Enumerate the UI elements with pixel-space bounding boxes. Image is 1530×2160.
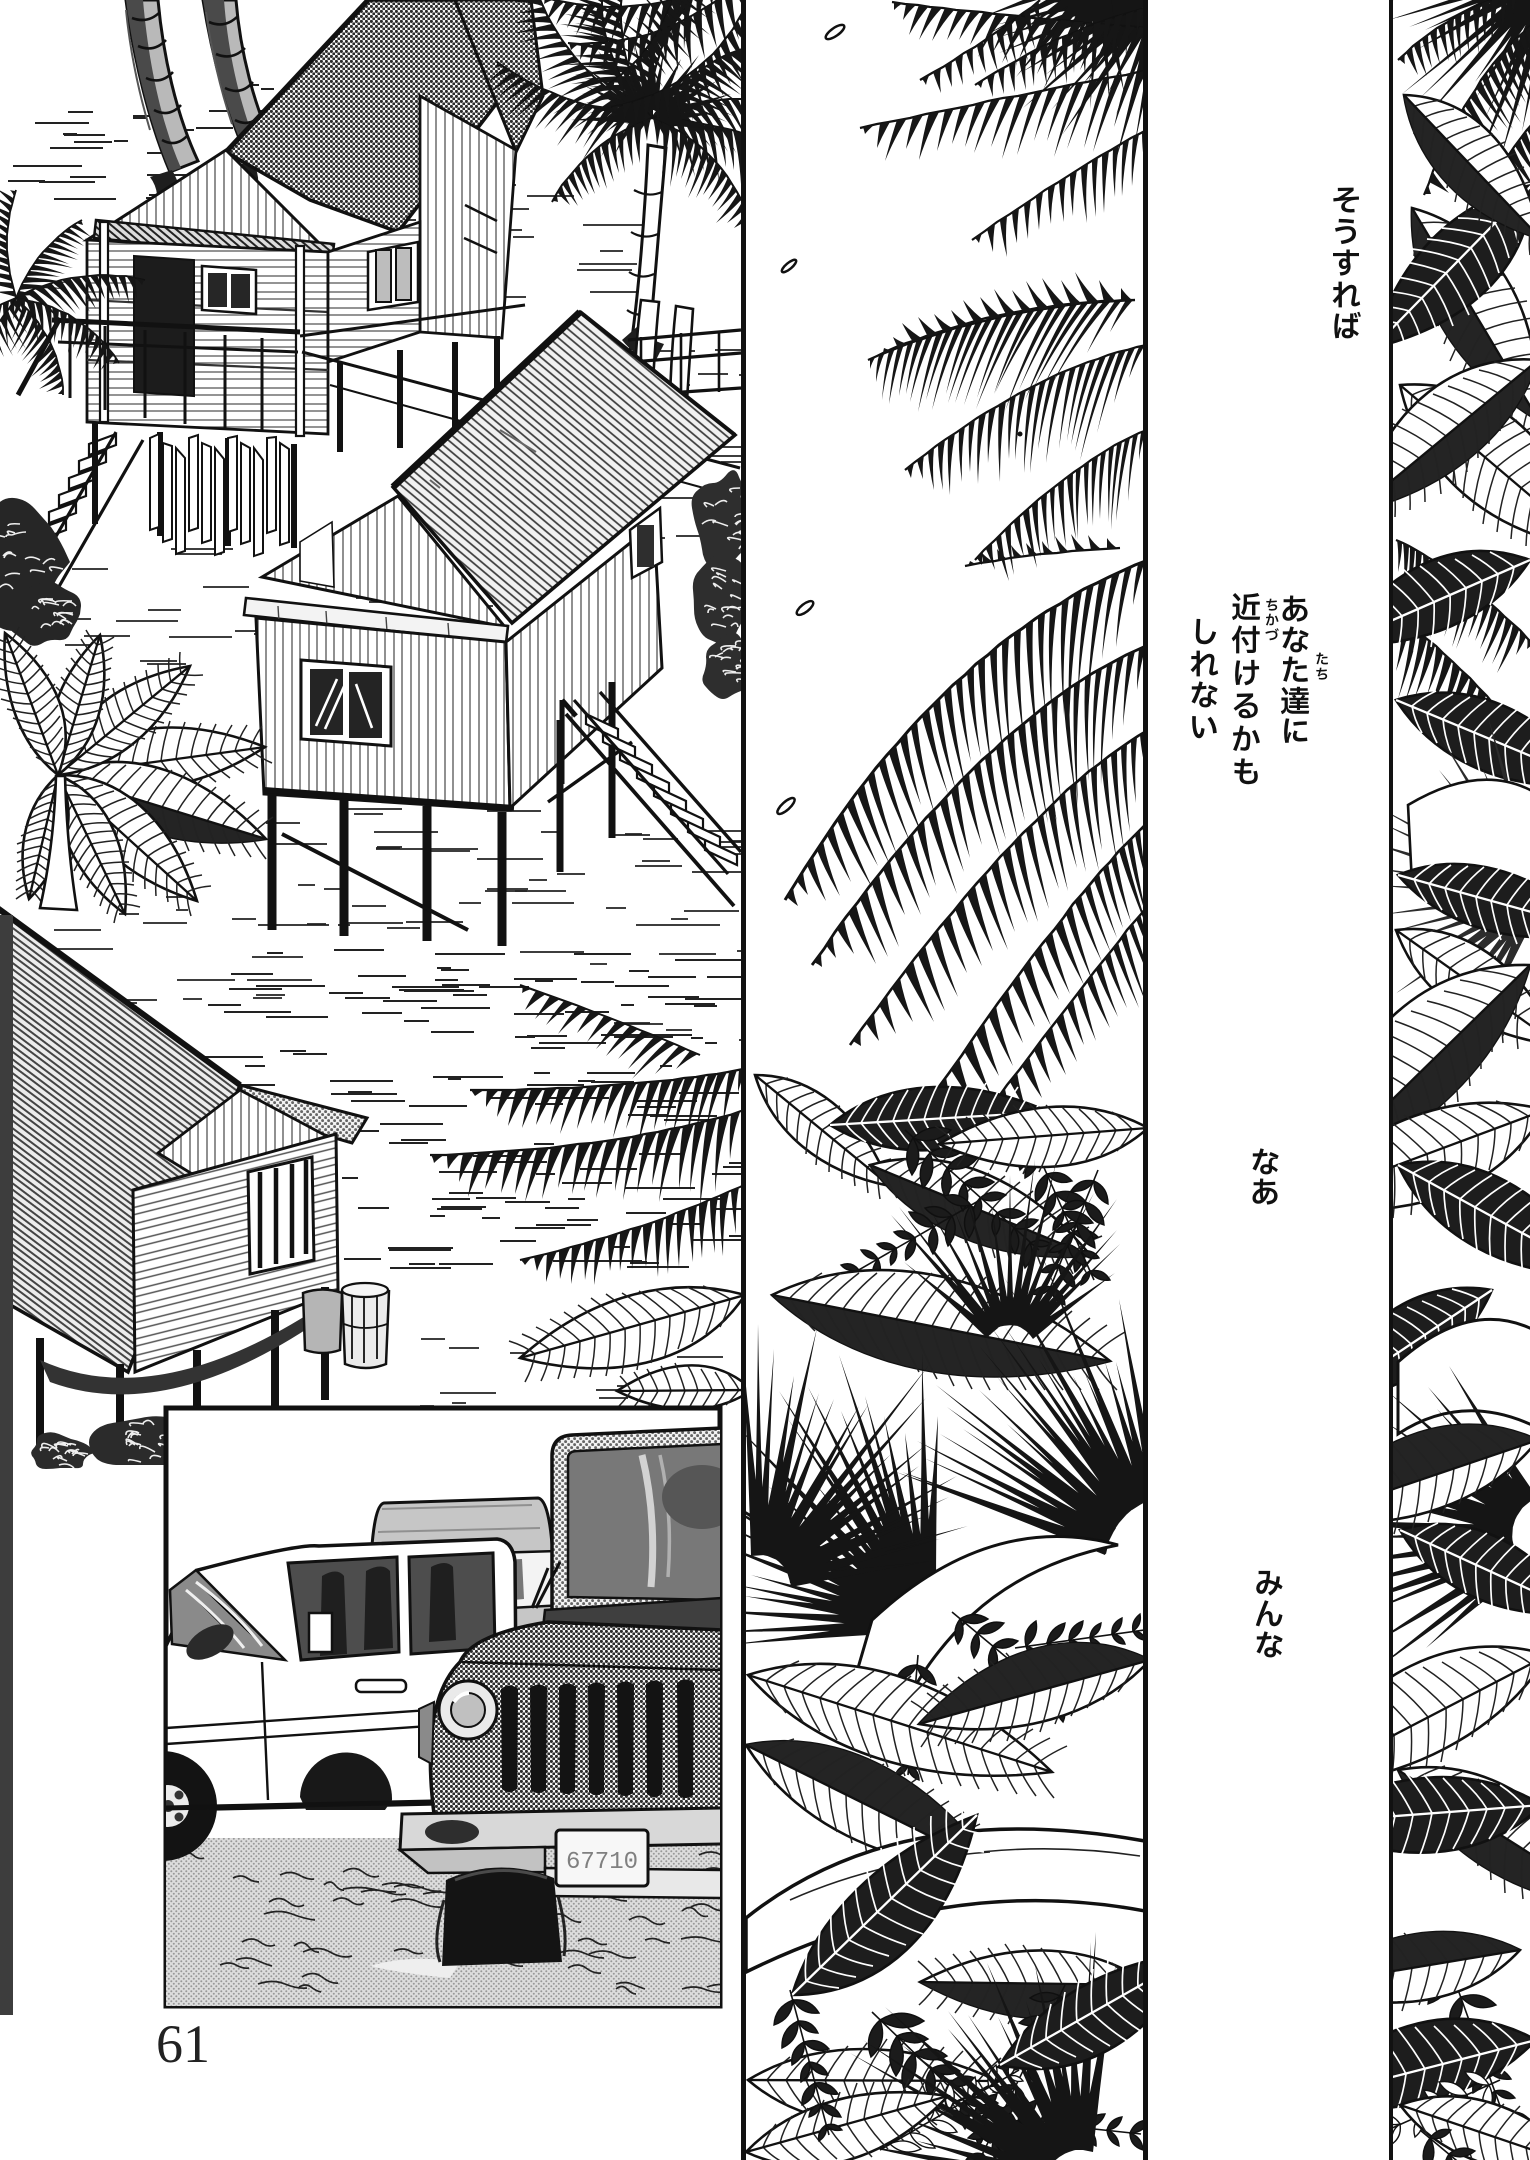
- svg-text:61: 61: [156, 2014, 210, 2074]
- svg-text:67710: 67710: [566, 1849, 638, 1876]
